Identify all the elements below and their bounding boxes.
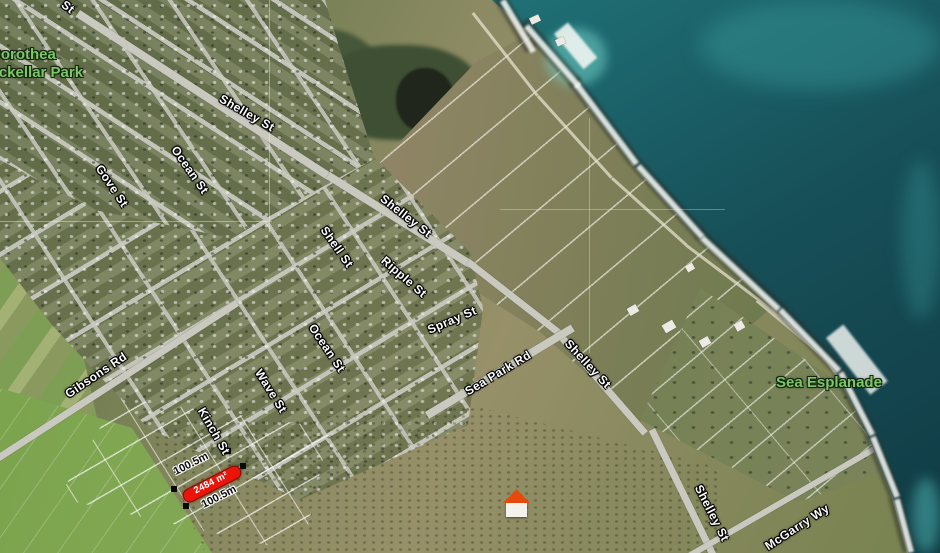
park-label-line: Mackellar Park — [0, 64, 83, 82]
gridline — [269, 0, 270, 232]
vertex-marker[interactable] — [183, 503, 189, 509]
map-canvas[interactable]: 2484 m² 100.5m 100.5m StShelley StShelle… — [0, 0, 940, 553]
park-label-line: Dorothea — [0, 46, 83, 64]
gridline — [500, 209, 725, 210]
gridline — [0, 221, 272, 222]
vertex-marker[interactable] — [225, 448, 231, 454]
vertex-marker[interactable] — [240, 463, 246, 469]
vertex-marker[interactable] — [171, 486, 177, 492]
shallow-water — [902, 160, 940, 320]
gridline — [589, 118, 590, 353]
park-label-dorothea-mackellar-park: Dorothea Mackellar Park — [0, 46, 83, 82]
shallow-water — [912, 478, 940, 553]
shallow-water — [700, 0, 940, 90]
park-label-sea-esplanade: Sea Esplanade — [776, 374, 882, 392]
red-roof-building — [506, 502, 527, 517]
